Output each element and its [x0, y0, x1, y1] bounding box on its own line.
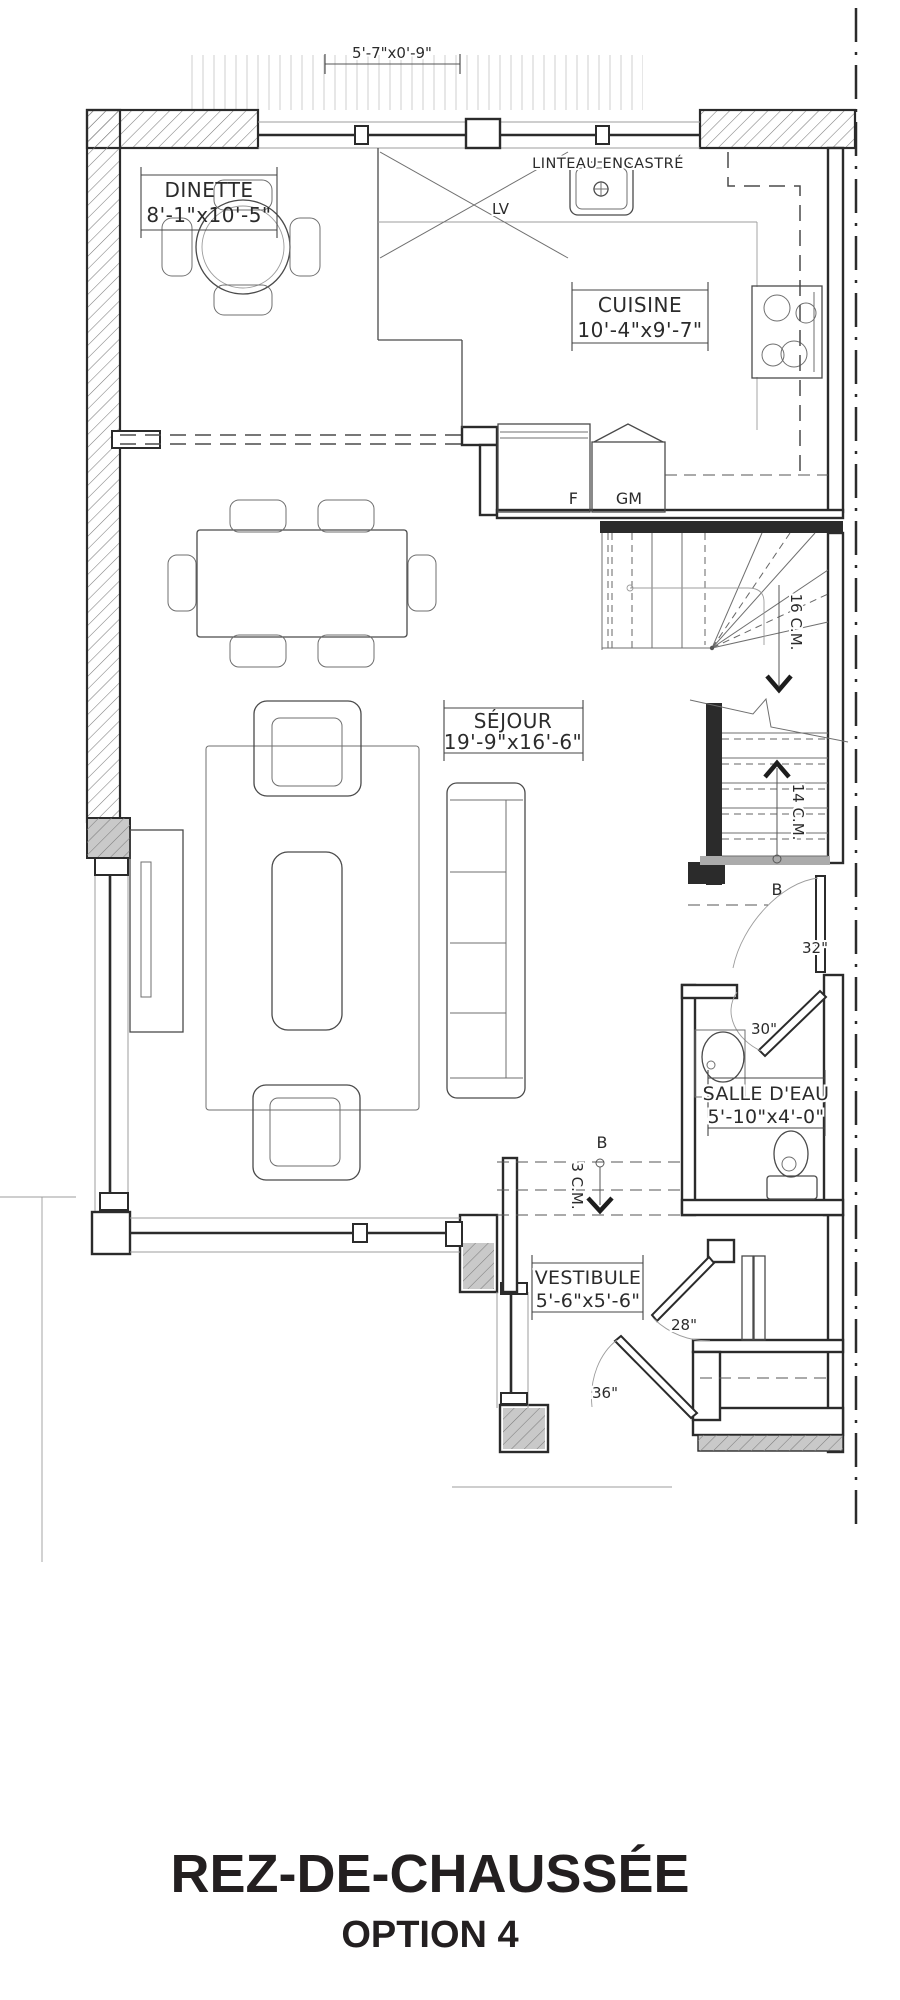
stair-down-risers-label: 14 C.M. — [789, 784, 807, 841]
entry-hall: B 3 C.M. — [497, 1133, 682, 1215]
door-leaf — [652, 1257, 714, 1321]
entry-beam-label: B — [597, 1133, 608, 1152]
window-post — [466, 119, 500, 148]
door-size-label: 28" — [671, 1316, 697, 1334]
sejour-area: SÉJOUR 19'-9"x16'-6" — [130, 500, 583, 1180]
entry-door-post — [693, 1352, 720, 1420]
handrail — [630, 588, 764, 645]
pantry-label: GM — [616, 489, 642, 508]
cuisine-label: CUISINE 10'-4"x9'-7" — [572, 282, 708, 351]
chair — [318, 500, 374, 532]
pantry: GM — [592, 424, 665, 512]
porch: 5'-7"x0'-9" — [183, 44, 643, 110]
chair — [318, 635, 374, 667]
room-dims: 5'-6"x5'-6" — [536, 1290, 641, 1312]
room-dims: 10'-4"x9'-7" — [577, 318, 702, 342]
plan-subtitle: OPTION 4 — [341, 1914, 518, 1956]
sejour-label: SÉJOUR 19'-9"x16'-6" — [444, 700, 583, 761]
coffee-table — [272, 852, 342, 1030]
dining-table — [168, 500, 436, 667]
stove — [752, 286, 822, 378]
east-wall-stair — [828, 533, 843, 863]
south-wall-hatch — [698, 1435, 843, 1451]
tv-console — [130, 830, 183, 1032]
bath-west-wall — [682, 985, 695, 1215]
burner-icon — [781, 341, 807, 367]
dishwasher-label: LV — [492, 200, 510, 218]
porch-boards — [183, 55, 643, 110]
closet-north-wall — [693, 1340, 843, 1352]
stair-beam-label: B — [772, 880, 783, 899]
beam-pocket — [112, 431, 160, 448]
stair-door-post — [688, 862, 725, 884]
floor-plan-page: 5'-7"x0'-9" — [0, 0, 900, 2000]
door-leaf — [615, 1336, 697, 1418]
door-size-label: 36" — [592, 1384, 618, 1402]
sejour-sw-corner — [463, 1243, 494, 1289]
salle-deau-label: SALLE D'EAU 5'-10"x4'-0" — [703, 1070, 830, 1136]
door-size-label: 30" — [751, 1020, 777, 1038]
room-dims: 5'-10"x4'-0" — [708, 1106, 825, 1128]
west-wall — [87, 110, 120, 822]
plan-title: REZ-DE-CHAUSSÉE — [170, 1844, 689, 1904]
window-mullion — [355, 126, 368, 144]
doors: 32" 30" 28" 36" — [592, 876, 828, 1418]
armchair-top — [254, 701, 361, 796]
stairwell-north-wall — [600, 521, 843, 533]
chair — [168, 555, 196, 611]
door-size-label: 32" — [802, 939, 828, 957]
vestibule-sw-corner — [503, 1408, 545, 1449]
chair — [408, 555, 436, 611]
chair — [290, 218, 320, 276]
room-name: SALLE D'EAU — [703, 1083, 830, 1105]
vestibule-wall-stub — [503, 1158, 517, 1292]
porch-dimension-label: 5'-7"x0'-9" — [352, 44, 432, 62]
burner-icon — [796, 303, 816, 323]
armchair-bottom — [253, 1085, 360, 1180]
room-dims: 8'-1"x10'-5" — [146, 203, 271, 227]
dinette-area: DINETTE 8'-1"x10'-5" — [141, 167, 320, 315]
door-36: 36" — [592, 1336, 697, 1418]
door-28: 28" — [652, 1240, 734, 1341]
room-name: CUISINE — [598, 293, 682, 317]
site-lines — [0, 8, 856, 1562]
top-wall-right — [700, 110, 855, 148]
room-name: DINETTE — [164, 178, 253, 202]
kitchen-south-wall — [497, 510, 843, 518]
window-mullion — [353, 1224, 367, 1242]
chair — [230, 500, 286, 532]
stair-run-down — [722, 733, 828, 856]
area-rug — [206, 746, 419, 1110]
bath-south-wall — [682, 1200, 843, 1215]
kitchen-step-wall — [480, 445, 497, 515]
vestibule-label: VESTIBULE 5'-6"x5'-6" — [532, 1255, 643, 1320]
stair-landing-edge — [700, 856, 830, 865]
fridge-label: F — [569, 489, 578, 508]
chair — [230, 635, 286, 667]
salle-deau-area: SALLE D'EAU 5'-10"x4'-0" — [695, 1030, 829, 1199]
room-name: VESTIBULE — [535, 1267, 642, 1289]
stair-up-risers-label: 16 C.M. — [787, 594, 805, 651]
window-mullion — [596, 126, 609, 144]
sofa — [447, 783, 525, 1098]
toilet — [767, 1131, 817, 1199]
bath-north-wall — [682, 985, 737, 998]
fridge: F — [498, 424, 590, 512]
bifold-door-panel — [754, 1256, 765, 1340]
dinette-label: DINETTE 8'-1"x10'-5" — [141, 167, 277, 238]
floor-plan-drawing: 5'-7"x0'-9" — [0, 0, 900, 2000]
lintel-label: LINTEAU ENCASTRÉ — [532, 155, 684, 172]
sw-window-corner — [92, 1212, 130, 1254]
entry-risers-label: 3 C.M. — [568, 1162, 586, 1209]
faucet-icon — [707, 1061, 715, 1069]
exterior-walls — [87, 110, 855, 1452]
door-leaf — [816, 876, 825, 972]
west-wall-corner — [87, 818, 130, 858]
title-block: REZ-DE-CHAUSSÉE OPTION 4 — [170, 1844, 689, 1956]
bifold-door-panel — [742, 1256, 753, 1340]
stairs: 16 C.M. 14 C.M. B — [602, 533, 848, 905]
burner-icon — [764, 295, 790, 321]
east-wall-kitchen — [828, 148, 843, 512]
room-dims: 19'-9"x16'-6" — [444, 730, 583, 754]
